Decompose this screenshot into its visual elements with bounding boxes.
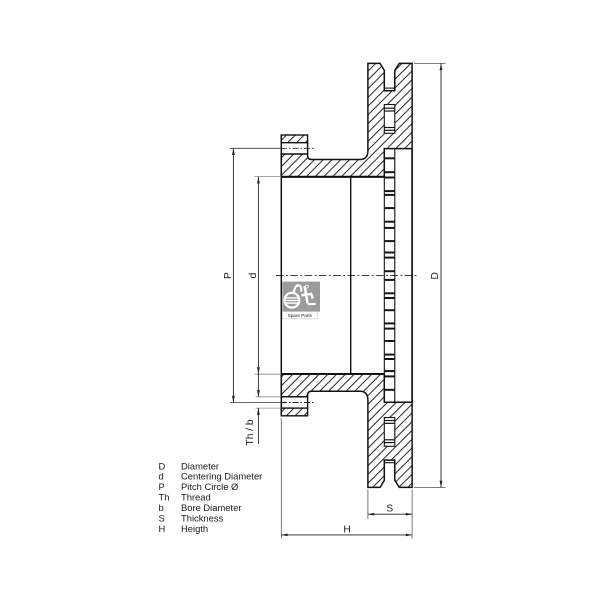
svg-text:Bore Diameter: Bore Diameter (181, 502, 241, 513)
svg-text:H: H (343, 525, 350, 536)
svg-text:P: P (159, 481, 165, 492)
svg-text:d: d (159, 471, 164, 482)
svg-text:Heigth: Heigth (181, 523, 208, 534)
svg-text:Thread: Thread (181, 492, 211, 503)
svg-text:Pitch Circle Ø: Pitch Circle Ø (181, 481, 238, 492)
svg-text:Centering Diameter: Centering Diameter (181, 471, 262, 482)
svg-text:Thickness: Thickness (181, 513, 224, 524)
svg-text:d: d (248, 272, 259, 278)
svg-text:b: b (159, 502, 164, 513)
svg-text:D: D (430, 272, 441, 279)
svg-text:H: H (159, 523, 166, 534)
svg-text:Spare Parts: Spare Parts (288, 313, 313, 318)
svg-text:Th: Th (159, 492, 170, 503)
svg-text:Diameter: Diameter (181, 460, 219, 471)
svg-text:S: S (386, 504, 393, 515)
svg-text:Th / b: Th / b (245, 419, 256, 445)
svg-text:P: P (223, 272, 234, 279)
svg-text:D: D (159, 460, 166, 471)
svg-text:S: S (159, 513, 165, 524)
